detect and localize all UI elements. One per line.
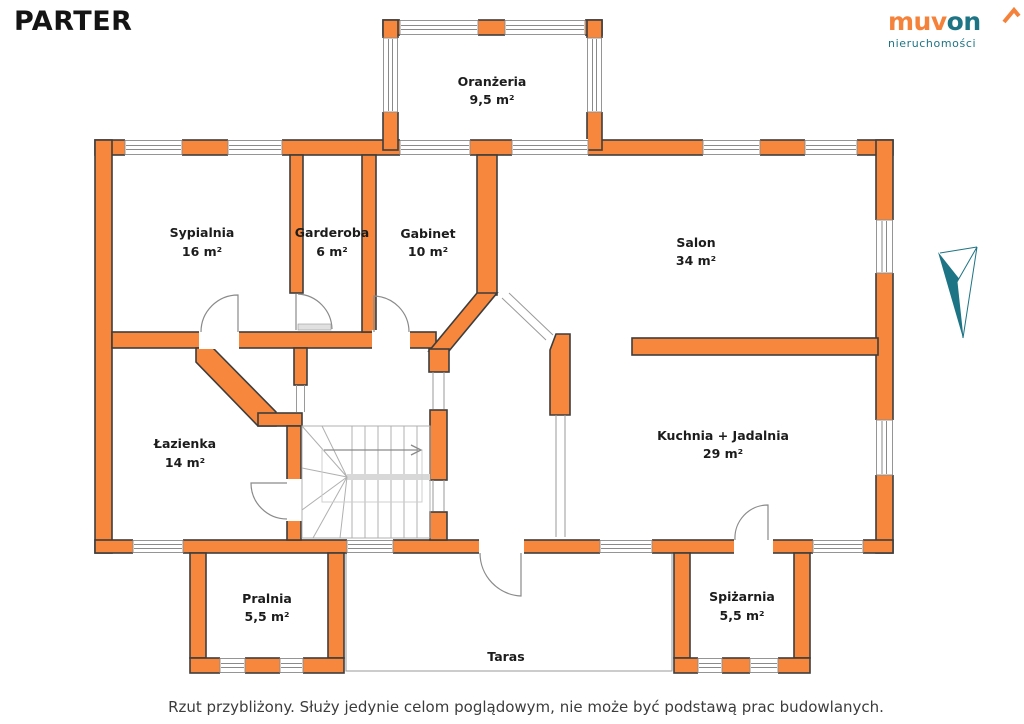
door-gabinet [374,296,409,332]
svg-text:Łazienka: Łazienka [153,436,216,451]
window [512,139,588,156]
window [698,657,722,674]
door-taras [480,553,521,596]
svg-text:5,5 m²: 5,5 m² [720,608,765,623]
door-lazienka [251,483,287,519]
window [125,139,182,156]
svg-text:16 m²: 16 m² [182,244,222,259]
svg-text:Garderoba: Garderoba [295,225,369,240]
window [220,657,245,674]
svg-text:Oranżeria: Oranżeria [458,74,527,89]
window [805,139,857,156]
floor-plan: Oranżeria 9,5 m² Sypialnia 16 m² Gardero… [0,0,1024,724]
svg-text:6 m²: 6 m² [316,244,348,259]
room-label-spizarnia: Spiżarnia 5,5 m² [709,589,775,623]
svg-text:Sypialnia: Sypialnia [170,225,235,240]
svg-text:5,5 m²: 5,5 m² [245,609,290,624]
svg-text:Kuchnia + Jadalnia: Kuchnia + Jadalnia [657,428,789,443]
disclaimer-text: Rzut przybliżony. Służy jedynie celom po… [14,698,1024,716]
svg-text:Taras: Taras [487,649,524,664]
svg-text:34 m²: 34 m² [676,253,716,268]
window [400,19,478,36]
window [505,19,585,36]
staircase [302,426,430,538]
room-label-salon: Salon 34 m² [676,235,716,268]
door-spizarnia [735,505,768,540]
room-label-gabinet: Gabinet 10 m² [400,226,455,259]
window [280,657,303,674]
svg-text:Gabinet: Gabinet [400,226,455,241]
window [875,420,894,475]
svg-text:Pralnia: Pralnia [242,591,292,606]
svg-text:Spiżarnia: Spiżarnia [709,589,775,604]
room-label-kuchnia: Kuchnia + Jadalnia 29 m² [657,428,789,461]
room-labels: Oranżeria 9,5 m² Sypialnia 16 m² Gardero… [153,74,789,664]
svg-text:Salon: Salon [676,235,715,250]
window [586,38,603,112]
svg-text:9,5 m²: 9,5 m² [470,92,515,107]
room-label-oranzeria: Oranżeria 9,5 m² [458,74,527,107]
room-label-lazienka: Łazienka 14 m² [153,436,216,470]
window [400,139,470,156]
window [600,539,652,554]
window [703,139,760,156]
room-label-sypialnia: Sypialnia 16 m² [170,225,235,259]
north-arrow-icon [938,247,977,338]
window [750,657,778,674]
svg-text:14 m²: 14 m² [165,455,205,470]
window [347,539,393,554]
window [133,539,183,554]
room-label-pralnia: Pralnia 5,5 m² [242,591,292,624]
door-sypialnia [201,295,238,332]
door-garderoba [296,294,332,330]
svg-text:10 m²: 10 m² [408,244,448,259]
window [382,38,399,112]
window [813,539,863,554]
window [875,220,894,273]
svg-text:29 m²: 29 m² [703,446,743,461]
room-label-taras: Taras [487,649,524,664]
room-label-garderoba: Garderoba 6 m² [295,225,369,259]
window [228,139,282,156]
